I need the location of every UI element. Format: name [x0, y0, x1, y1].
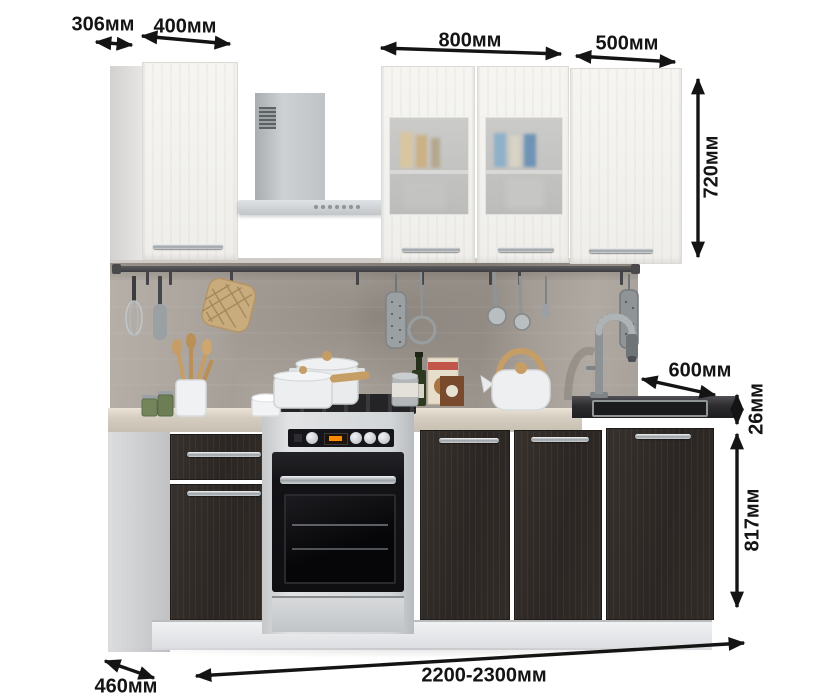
- dim-label-base-depth: 460мм: [95, 676, 158, 699]
- dim-label-upper-depth: 306мм: [72, 14, 135, 37]
- dim-label-cab-800: 800мм: [439, 30, 502, 53]
- dim-label-worktop-thickness: 26мм: [746, 383, 769, 435]
- dim-label-cab-400: 400мм: [154, 16, 217, 39]
- dim-label-upper-height: 720мм: [701, 136, 724, 199]
- kitchen-product-image: 306мм 400мм 800мм 500мм 720мм 600мм 26мм…: [0, 0, 816, 700]
- dim-label-base-height: 817мм: [742, 489, 765, 552]
- dim-label-total-width: 2200-2300мм: [421, 665, 546, 688]
- dim-arrow-306: [96, 42, 132, 45]
- dimension-arrows: [0, 0, 816, 700]
- dim-arrow-500: [576, 56, 675, 62]
- dim-label-cab-500: 500мм: [596, 33, 659, 56]
- dim-label-worktop-depth: 600мм: [669, 360, 732, 383]
